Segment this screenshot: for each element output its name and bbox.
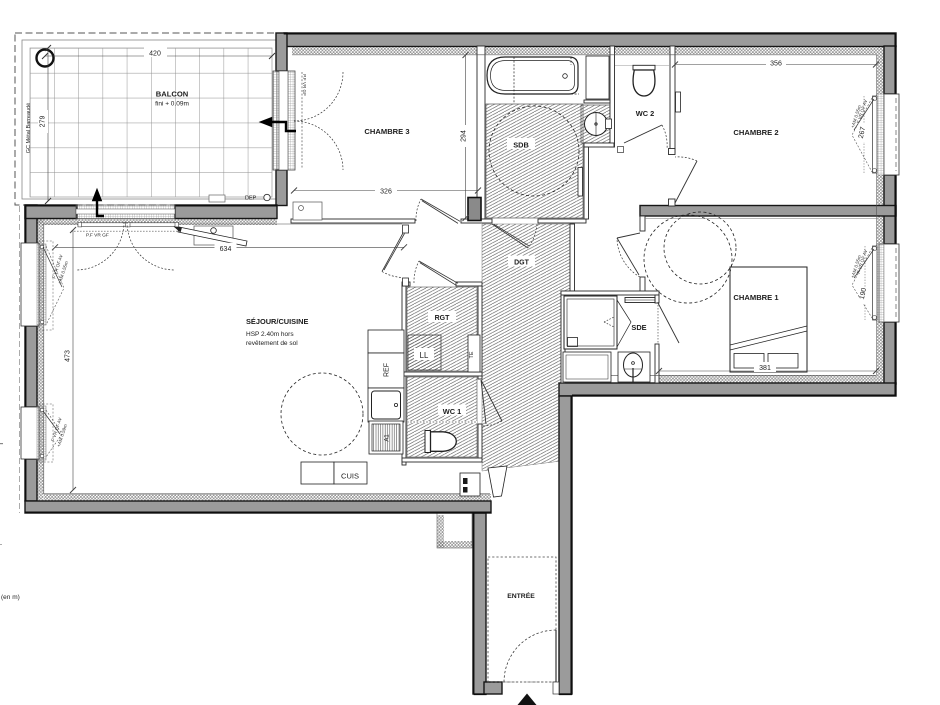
svg-text:P.F VR GF: P.F VR GF [86,233,109,239]
svg-text:WC 1: WC 1 [443,407,461,416]
svg-text:SDB: SDB [513,141,529,150]
svg-text:REF: REF [384,363,391,377]
svg-text:fini + 0.09m: fini + 0.09m [155,101,189,108]
svg-text:A1: A1 [385,434,391,442]
svg-text:279: 279 [40,116,47,128]
svg-text:GC Métal Barreaudé: GC Métal Barreaudé [26,103,32,153]
svg-text:DEP: DEP [245,196,257,202]
svg-text:LL: LL [420,351,429,360]
svg-text:-: - [0,542,2,548]
svg-text:RGT: RGT [435,315,451,322]
svg-text:473: 473 [65,350,72,362]
svg-text:356: 356 [770,61,782,68]
svg-text:BALCON: BALCON [156,90,188,99]
svg-text:420: 420 [149,51,161,58]
svg-text:SÉJOUR/CUISINE: SÉJOUR/CUISINE [246,317,308,326]
svg-text:381: 381 [759,365,771,372]
svg-text:SDE: SDE [631,323,646,332]
svg-text:DGT: DGT [514,260,530,267]
svg-text:CHAMBRE 1: CHAMBRE 1 [733,293,779,302]
svg-text:CHAMBRE 3: CHAMBRE 3 [364,127,409,136]
svg-text:ENTRÉE: ENTRÉE [507,591,535,600]
svg-text:294: 294 [461,130,468,142]
svg-text:(en m): (en m) [1,594,20,601]
svg-text:WC 2: WC 2 [636,109,654,118]
svg-text:P.F VR GF: P.F VR GF [302,74,307,96]
svg-text:634: 634 [220,246,232,253]
svg-text:revêtement de sol: revêtement de sol [246,340,298,347]
svg-text:CHAMBRE 2: CHAMBRE 2 [733,128,778,137]
svg-text:TE: TE [469,351,475,358]
svg-text:326: 326 [380,189,392,196]
svg-text:HSP 2.40m hors: HSP 2.40m hors [246,331,294,338]
svg-text:CUIS: CUIS [341,472,359,481]
